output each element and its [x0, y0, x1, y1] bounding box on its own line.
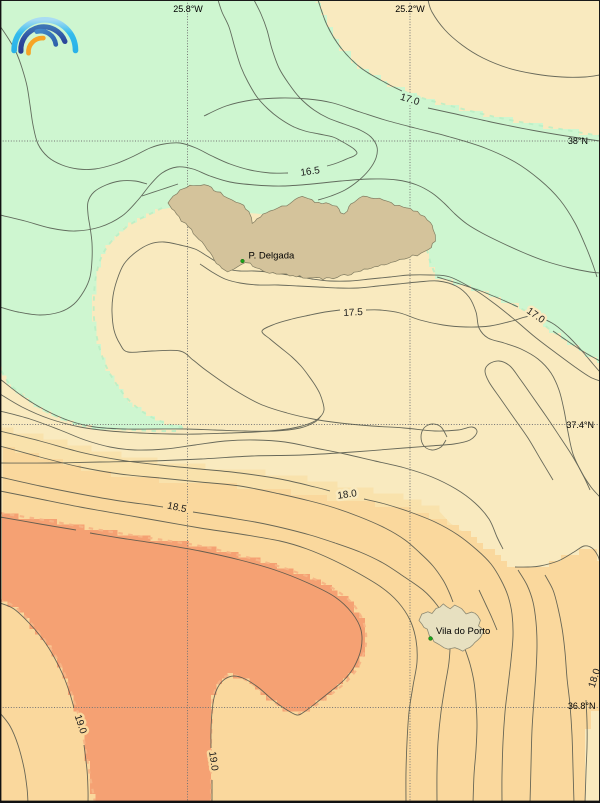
svg-text:36.8°N: 36.8°N — [568, 701, 596, 711]
svg-text:25.8°W: 25.8°W — [173, 4, 203, 14]
svg-text:Vila do Porto: Vila do Porto — [436, 626, 490, 637]
svg-text:38°N: 38°N — [568, 136, 588, 146]
svg-text:25.2°W: 25.2°W — [395, 4, 425, 14]
svg-text:17.5: 17.5 — [343, 307, 363, 319]
svg-text:37.4°N: 37.4°N — [566, 420, 594, 430]
svg-text:P. Delgada: P. Delgada — [249, 251, 295, 262]
